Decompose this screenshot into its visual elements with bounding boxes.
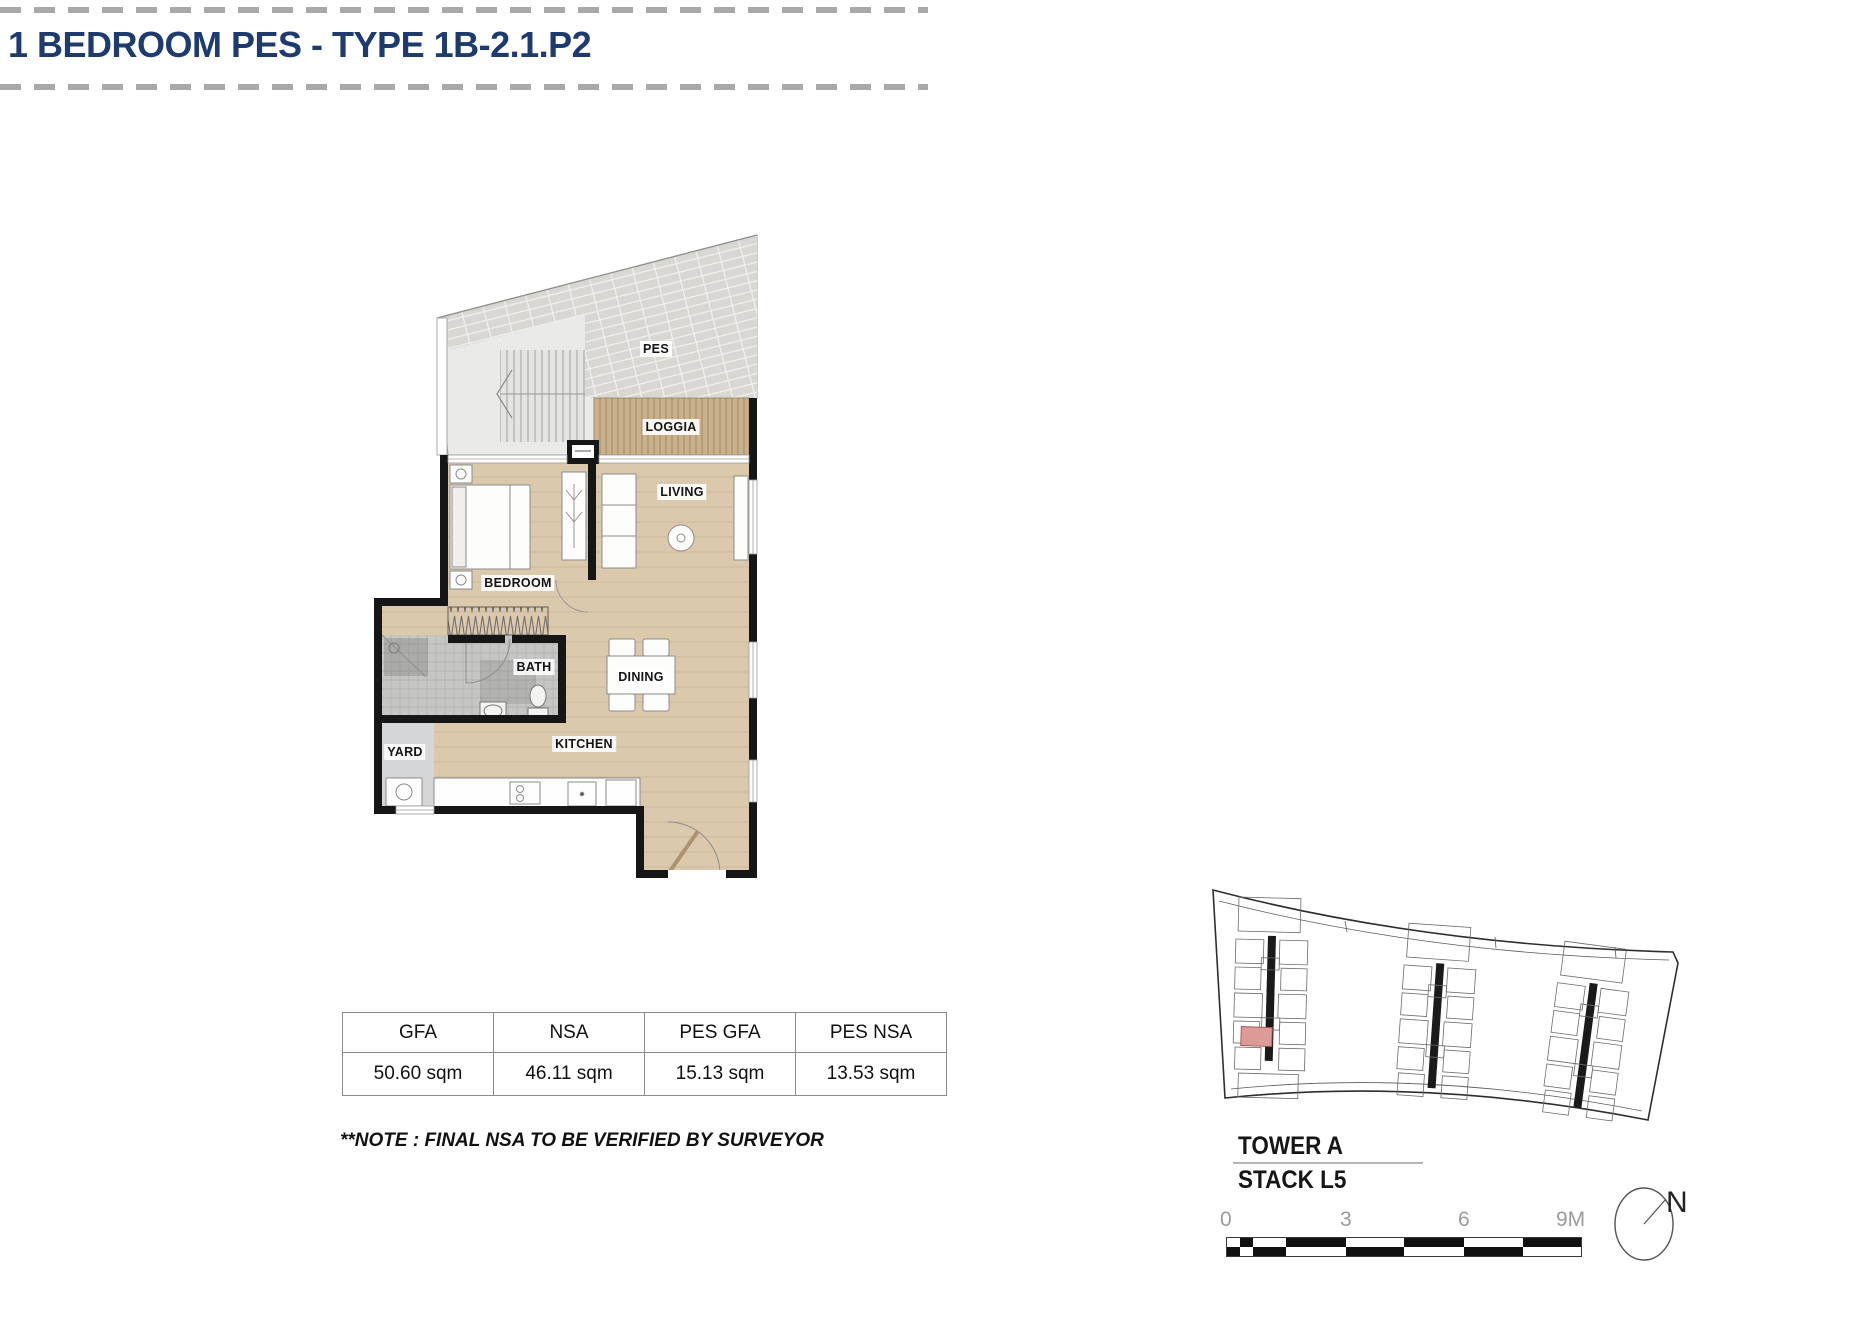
- floor-plan-drawing: [360, 222, 770, 890]
- val-pes-nsa: 13.53 sqm: [796, 1053, 947, 1096]
- room-label-kitchen: KITCHEN: [552, 736, 616, 752]
- val-pes-gfa: 15.13 sqm: [645, 1053, 796, 1096]
- scale-tick-0: 0: [1220, 1208, 1232, 1232]
- val-gfa: 50.60 sqm: [343, 1053, 494, 1096]
- stack-label: STACK L5: [1238, 1166, 1346, 1195]
- room-label-living: LIVING: [657, 484, 706, 500]
- scale-tick-6: 6: [1458, 1208, 1470, 1232]
- scale-tick-9m: 9M: [1556, 1208, 1585, 1232]
- tower-label: TOWER A: [1238, 1132, 1343, 1161]
- page-title: 1 BEDROOM PES - TYPE 1B-2.1.P2: [8, 24, 928, 66]
- scale-bar: [1226, 1237, 1582, 1257]
- area-table: GFA NSA PES GFA PES NSA 50.60 sqm 46.11 …: [342, 1012, 947, 1096]
- top-dashed-rule: [0, 7, 928, 13]
- bottom-dashed-rule: [0, 84, 928, 90]
- scale-tick-3: 3: [1340, 1208, 1352, 1232]
- room-label-loggia: LOGGIA: [642, 419, 699, 435]
- floorplan-page: { "header": { "title": "1 BEDROOM PES - …: [0, 0, 1876, 1326]
- area-table-header-row: GFA NSA PES GFA PES NSA: [343, 1013, 947, 1053]
- site-key-plan: [1195, 875, 1755, 1165]
- val-nsa: 46.11 sqm: [494, 1053, 645, 1096]
- site-plan-drawing: [1195, 875, 1715, 1155]
- col-nsa: NSA: [494, 1013, 645, 1053]
- room-label-dining: DINING: [615, 669, 667, 685]
- room-label-yard: YARD: [384, 744, 425, 760]
- wardrobe: [448, 607, 548, 635]
- col-pes-nsa: PES NSA: [796, 1013, 947, 1053]
- floor-plan: PES LOGGIA LIVING BEDROOM BATH DINING YA…: [360, 222, 770, 890]
- surveyor-note: **NOTE : FINAL NSA TO BE VERIFIED BY SUR…: [340, 1130, 824, 1152]
- room-label-pes: PES: [640, 341, 672, 357]
- north-label: N: [1666, 1186, 1688, 1220]
- col-pes-gfa: PES GFA: [645, 1013, 796, 1053]
- room-label-bedroom: BEDROOM: [481, 575, 554, 591]
- highlighted-unit: [1241, 1026, 1273, 1046]
- col-gfa: GFA: [343, 1013, 494, 1053]
- tower-underline: [1233, 1162, 1423, 1164]
- area-table-value-row: 50.60 sqm 46.11 sqm 15.13 sqm 13.53 sqm: [343, 1053, 947, 1096]
- room-label-bath: BATH: [514, 659, 555, 675]
